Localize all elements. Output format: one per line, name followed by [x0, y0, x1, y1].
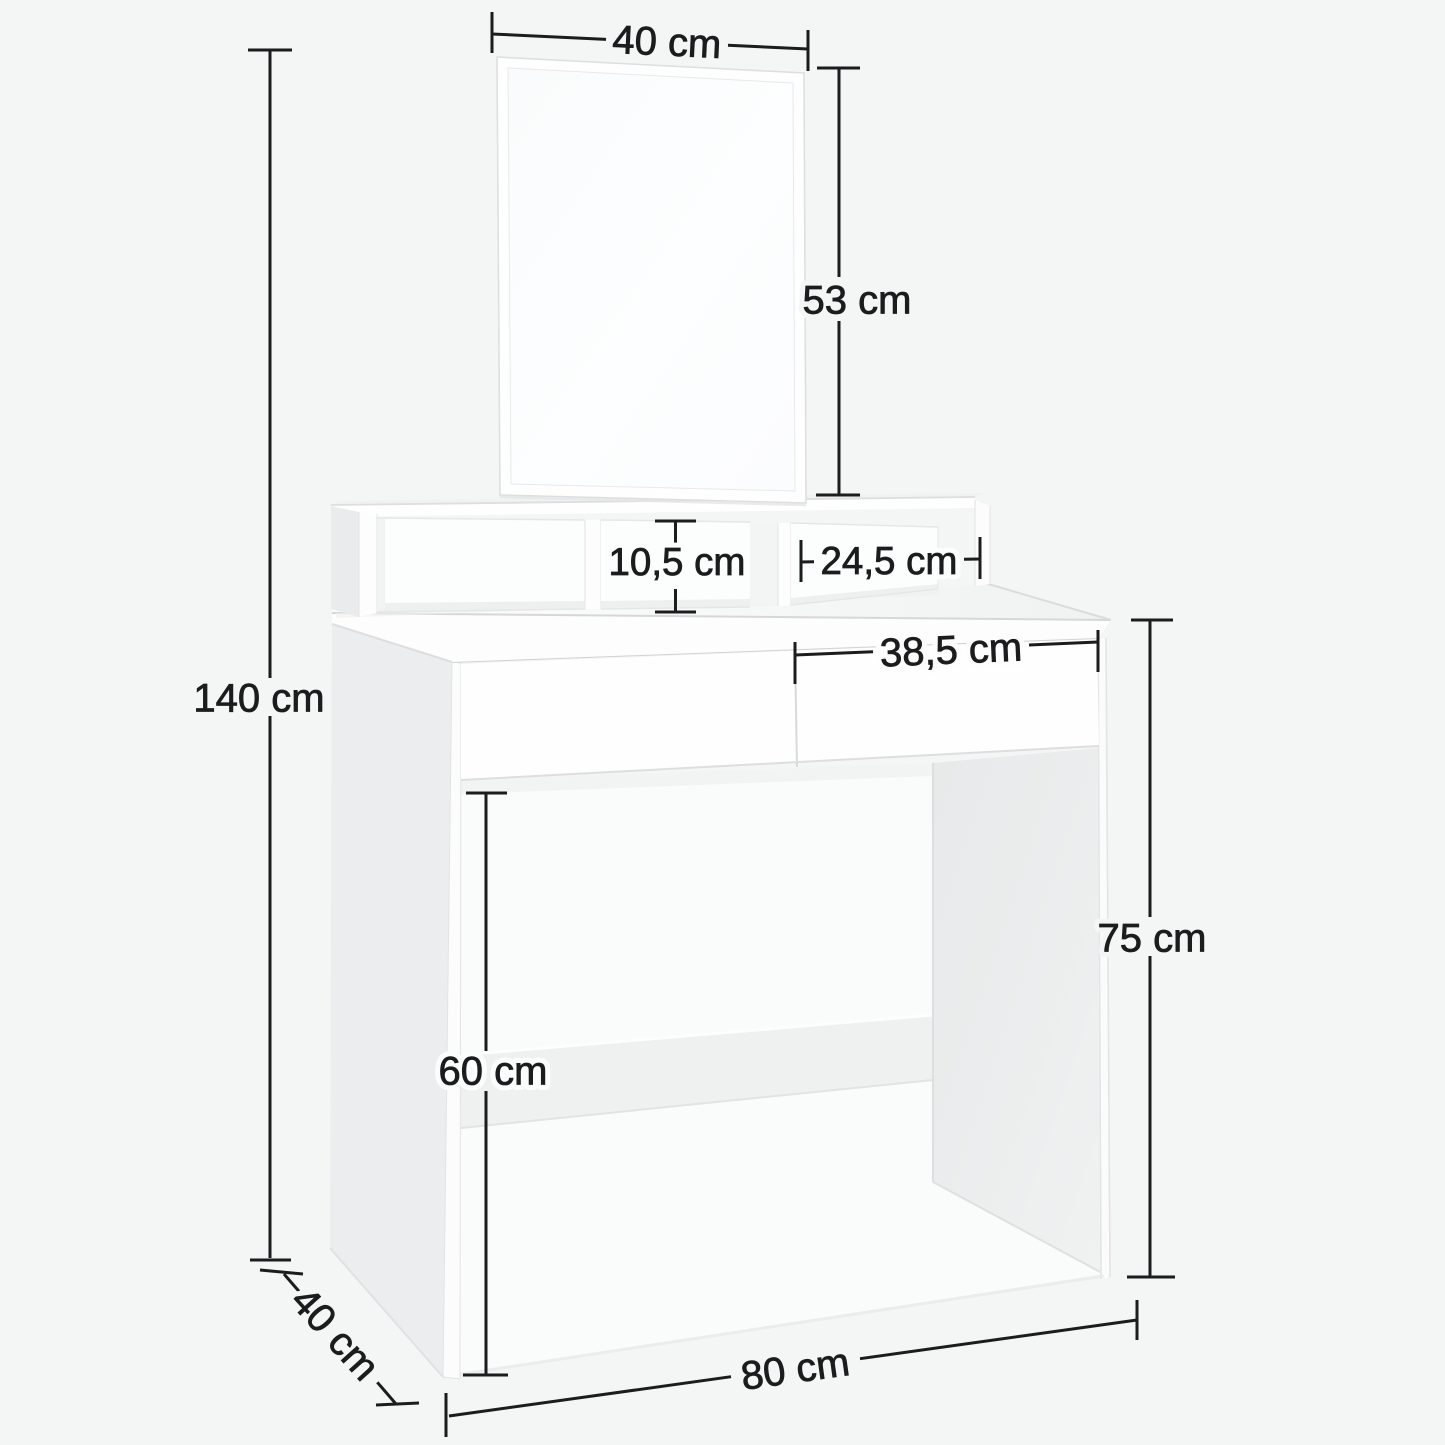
svg-text:24,5 cm: 24,5 cm — [821, 540, 958, 583]
svg-text:60 cm: 60 cm — [439, 1050, 548, 1094]
svg-text:75 cm: 75 cm — [1098, 917, 1207, 961]
svg-text:140 cm: 140 cm — [193, 677, 324, 721]
svg-text:40 cm: 40 cm — [611, 18, 722, 67]
svg-text:53 cm: 53 cm — [803, 279, 912, 323]
svg-text:10,5 cm: 10,5 cm — [609, 541, 746, 584]
svg-text:38,5 cm: 38,5 cm — [879, 625, 1023, 675]
